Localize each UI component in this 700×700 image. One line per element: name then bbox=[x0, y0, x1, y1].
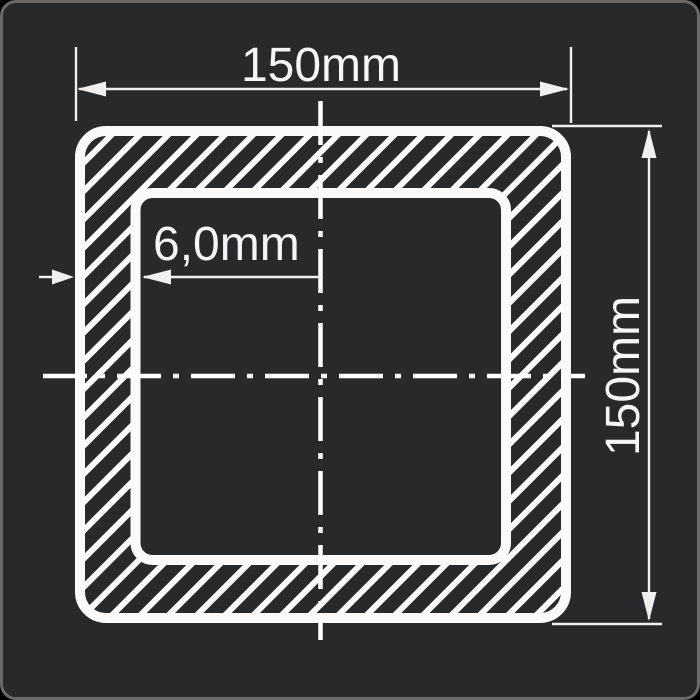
drawing-panel: 150mm 150mm 6,0mm bbox=[0, 0, 700, 700]
arrow-right-icon bbox=[540, 82, 569, 97]
width-dimension: 150mm bbox=[76, 39, 571, 123]
height-dimension-label: 150mm bbox=[597, 296, 650, 456]
arrow-up-icon bbox=[642, 129, 657, 158]
arrow-left-icon bbox=[77, 82, 106, 97]
thickness-dimension-label: 6,0mm bbox=[153, 218, 300, 271]
screenshot-stage: 150mm 150mm 6,0mm bbox=[0, 0, 700, 700]
width-dimension-label: 150mm bbox=[241, 39, 401, 92]
thickness-arrow-right-icon bbox=[52, 270, 74, 285]
arrow-down-icon bbox=[642, 592, 657, 621]
cross-section-drawing: 150mm 150mm 6,0mm bbox=[3, 3, 700, 700]
